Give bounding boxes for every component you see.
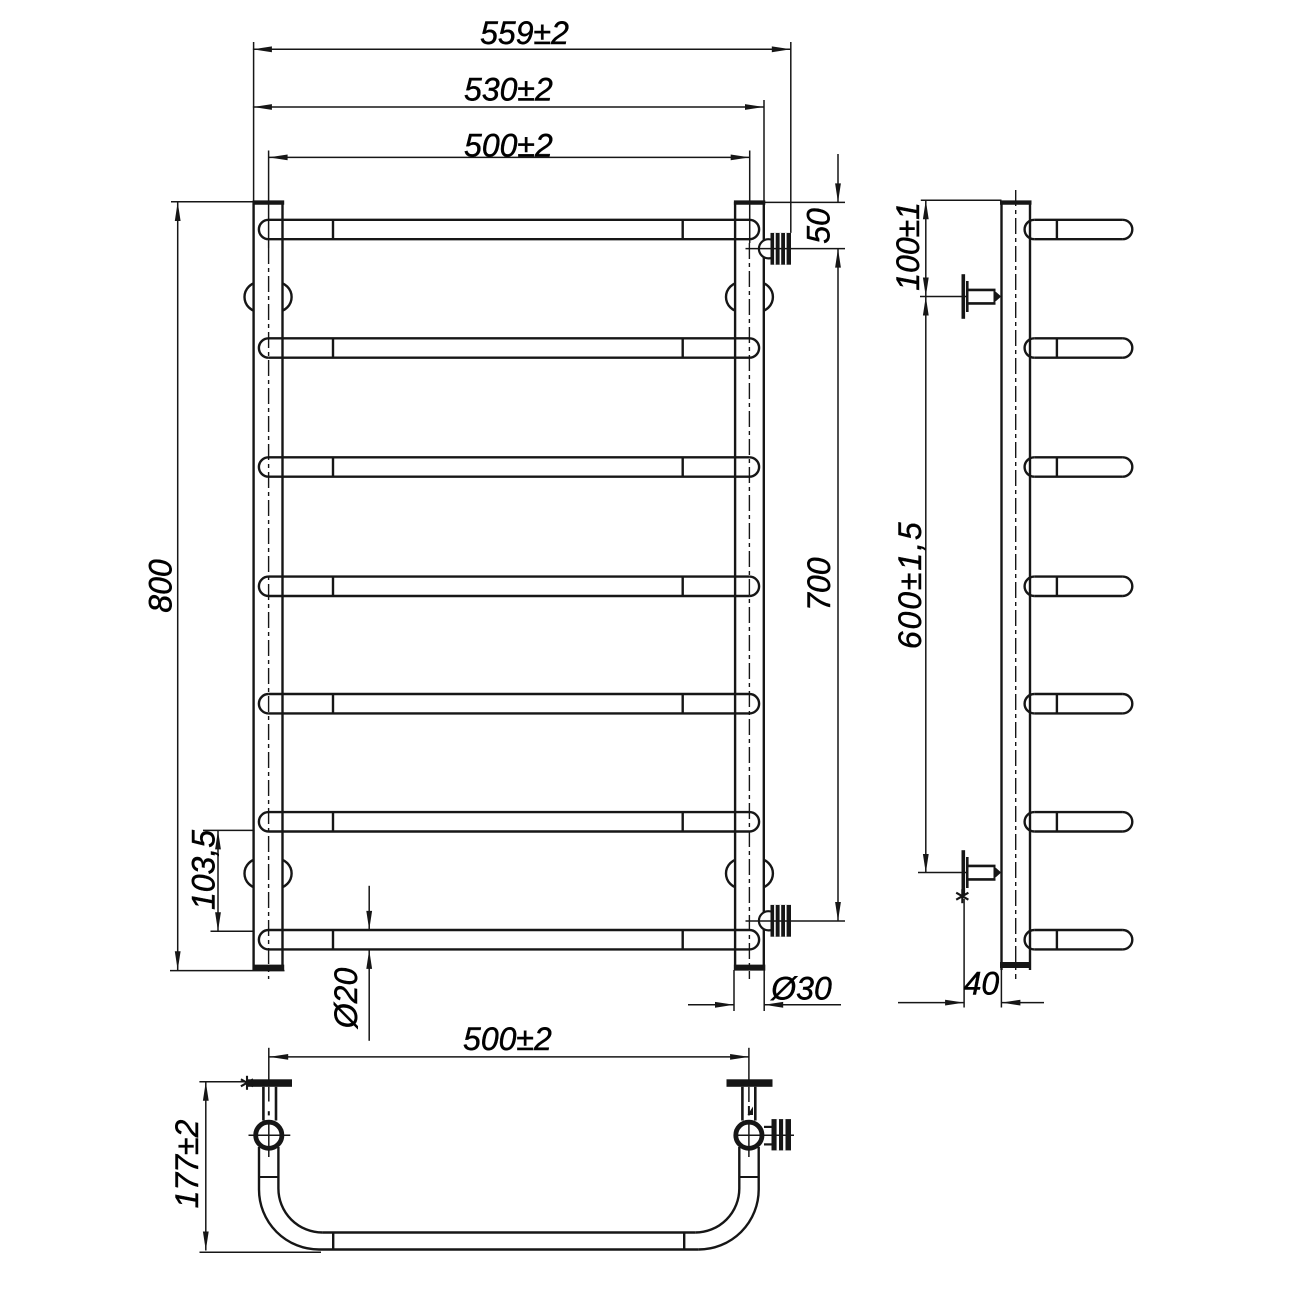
svg-text:100±1: 100±1 (890, 202, 926, 291)
svg-text:500±2: 500±2 (463, 1021, 552, 1057)
svg-text:177±2: 177±2 (169, 1119, 205, 1208)
svg-text:Ø30: Ø30 (770, 971, 832, 1007)
svg-text:700: 700 (801, 557, 837, 611)
svg-text:559±2: 559±2 (480, 15, 569, 51)
svg-text:Ø20: Ø20 (328, 968, 364, 1030)
svg-text:800: 800 (143, 559, 179, 613)
svg-text:50: 50 (801, 208, 837, 244)
svg-text:103,5: 103,5 (186, 830, 222, 910)
svg-text:530±2: 530±2 (464, 72, 553, 108)
svg-text:500±2: 500±2 (464, 127, 553, 163)
svg-text:40: 40 (964, 966, 1000, 1002)
svg-text:600±1,5: 600±1,5 (892, 520, 928, 649)
